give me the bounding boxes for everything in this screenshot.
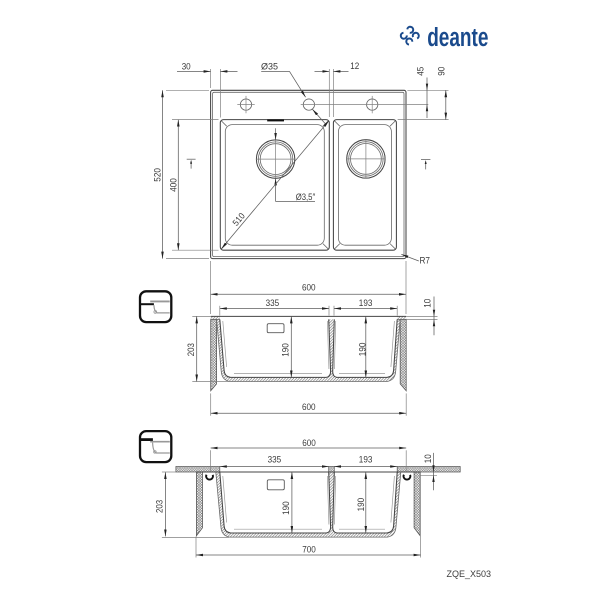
svg-text:203: 203 [186,343,196,356]
svg-text:deante: deante [427,22,488,52]
svg-text:90: 90 [436,67,446,76]
svg-text:Ø3,5″: Ø3,5″ [296,192,316,202]
svg-text:700: 700 [302,545,316,555]
svg-text:600: 600 [302,438,316,448]
svg-text:335: 335 [268,454,282,464]
svg-text:600: 600 [302,283,316,293]
svg-text:R7: R7 [420,256,431,266]
svg-text:203: 203 [155,500,165,513]
svg-text:10: 10 [423,299,433,308]
svg-text:520: 520 [152,168,162,182]
svg-text:45: 45 [415,67,425,76]
svg-text:600: 600 [302,402,316,412]
svg-text:12: 12 [350,61,359,71]
svg-text:335: 335 [266,298,280,308]
svg-text:400: 400 [168,178,178,192]
svg-text:190: 190 [356,498,366,512]
svg-text:30: 30 [182,62,191,72]
svg-text:193: 193 [359,454,373,464]
svg-text:190: 190 [281,501,291,515]
svg-text:190: 190 [357,343,367,357]
svg-text:10: 10 [423,454,433,463]
svg-text:ZQE_X503: ZQE_X503 [447,569,492,579]
svg-text:193: 193 [359,298,373,308]
svg-text:190: 190 [281,343,291,357]
svg-text:Ø35: Ø35 [261,61,278,71]
